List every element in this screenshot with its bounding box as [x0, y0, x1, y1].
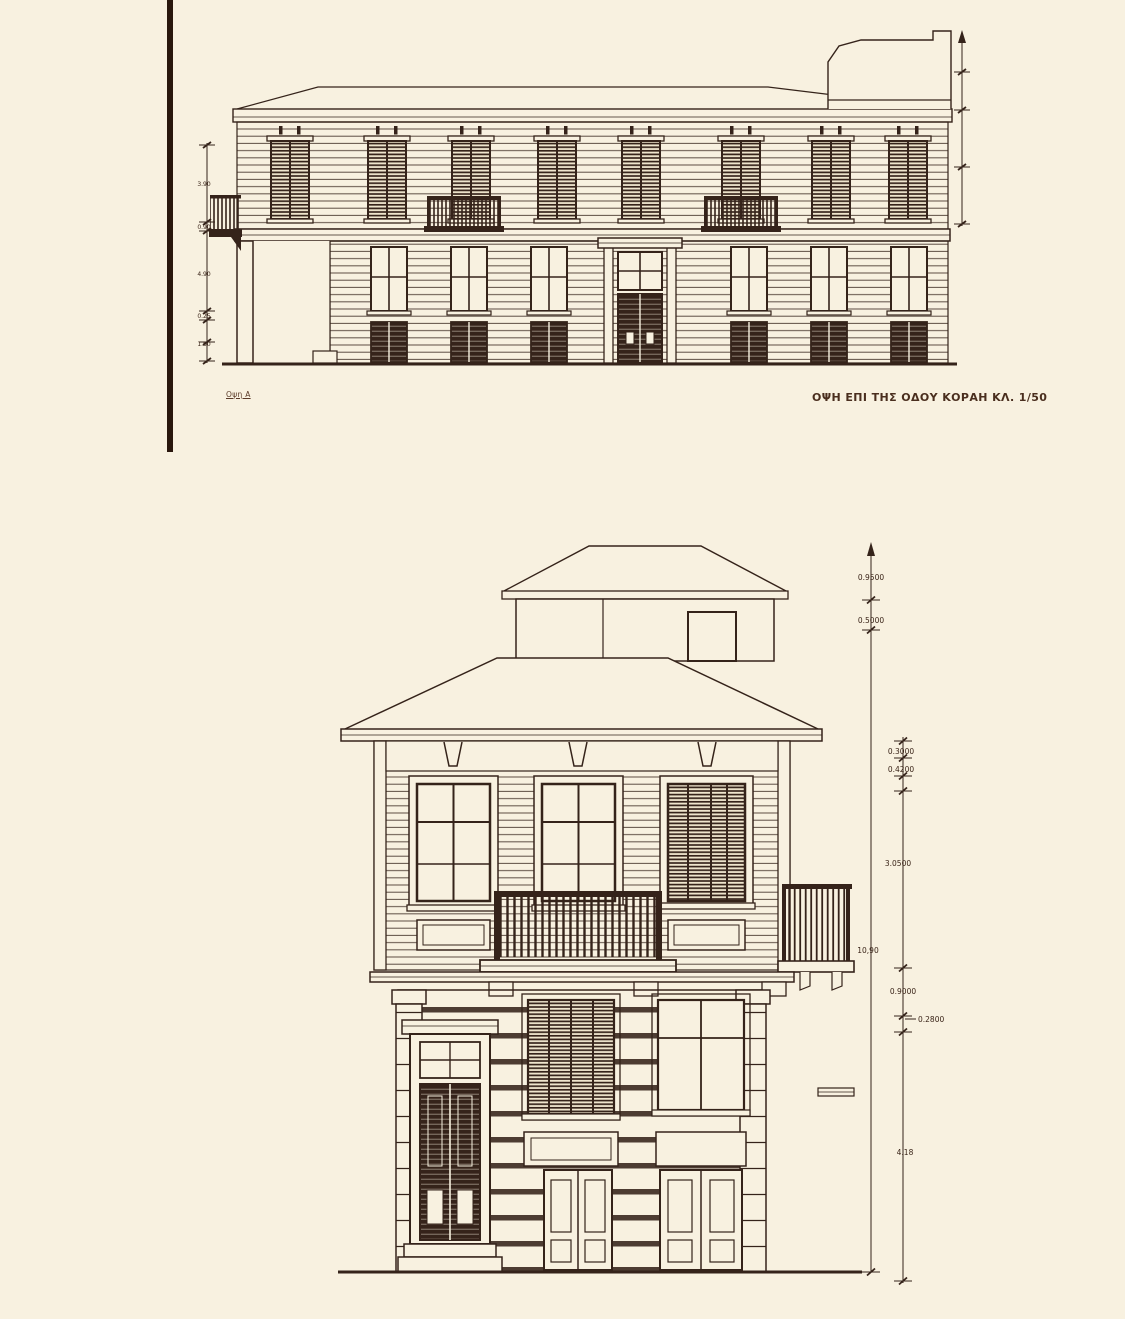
window [447, 247, 491, 315]
bottom-elevation-drawing: 0.9500 0.5000 10,90 0.3000 0.4200 3.0500… [338, 542, 944, 1285]
bottom-right-bay [652, 994, 750, 1270]
dim-label: 0.2800 [918, 1015, 944, 1024]
dim-label: 0.25 [197, 313, 211, 320]
top-left-balcony [209, 195, 242, 251]
bottom-balcony [480, 891, 676, 972]
dim-label: 0.3000 [888, 747, 914, 756]
top-left-dimension-line: 3.90 0.90 4.90 0.25 1.50 [197, 142, 215, 364]
window [727, 247, 771, 315]
balcony-railing [424, 196, 504, 232]
dim-label: 0.9000 [890, 987, 916, 996]
window [887, 247, 931, 315]
basement-door [531, 322, 567, 362]
dim-label: 3.90 [197, 181, 211, 188]
bottom-main-roof [341, 658, 822, 741]
window [807, 247, 851, 315]
bottom-entrance-door [398, 1020, 502, 1272]
dim-label: 10,90 [857, 946, 879, 955]
drawing-title: ΟΨΗ ΕΠΙ ΤΗΣ ΟΔΟΥ ΚΟΡΑΗ ΚΛ. 1/50 [812, 391, 1047, 404]
bottom-dimension-line-overall: 0.9500 0.5000 10,90 [857, 542, 884, 1276]
basement-door [371, 322, 407, 362]
dim-label: 1.50 [197, 341, 211, 348]
basement-door [811, 322, 847, 362]
dim-label: 4.90 [197, 271, 211, 278]
window [618, 126, 664, 223]
bottom-dimension-line-storeys: 0.3000 0.4200 3.0500 0.9000 0.2800 4.18 [885, 737, 945, 1285]
top-elevation-drawing: 3.90 0.90 4.90 0.25 1.50 [197, 30, 970, 364]
window [885, 126, 931, 223]
bottom-side-canopy [818, 1088, 854, 1096]
window [367, 247, 411, 315]
balcony-railing [701, 196, 781, 232]
dim-label: 4.18 [897, 1148, 914, 1157]
window [534, 126, 580, 223]
dim-label: 0.9500 [858, 573, 884, 582]
elevation-drawings-canvas: 3.90 0.90 4.90 0.25 1.50 [0, 0, 1125, 1319]
dim-label: 0.90 [197, 224, 211, 231]
basement-door [731, 322, 767, 362]
window [808, 126, 854, 223]
top-entrance-door [598, 238, 682, 363]
basement-door [451, 322, 487, 362]
dim-label: 0.4200 [888, 765, 914, 774]
dim-label: 0.5000 [858, 616, 884, 625]
window [364, 126, 410, 223]
top-roof-parapet [828, 31, 951, 109]
dim-label: 3.0500 [885, 859, 911, 868]
bottom-penthouse [502, 546, 788, 661]
window [527, 247, 571, 315]
basement-door [891, 322, 927, 362]
elevation-a-label: Οψη Α [226, 390, 251, 399]
window [267, 126, 313, 223]
top-right-dimension-line [954, 30, 970, 227]
